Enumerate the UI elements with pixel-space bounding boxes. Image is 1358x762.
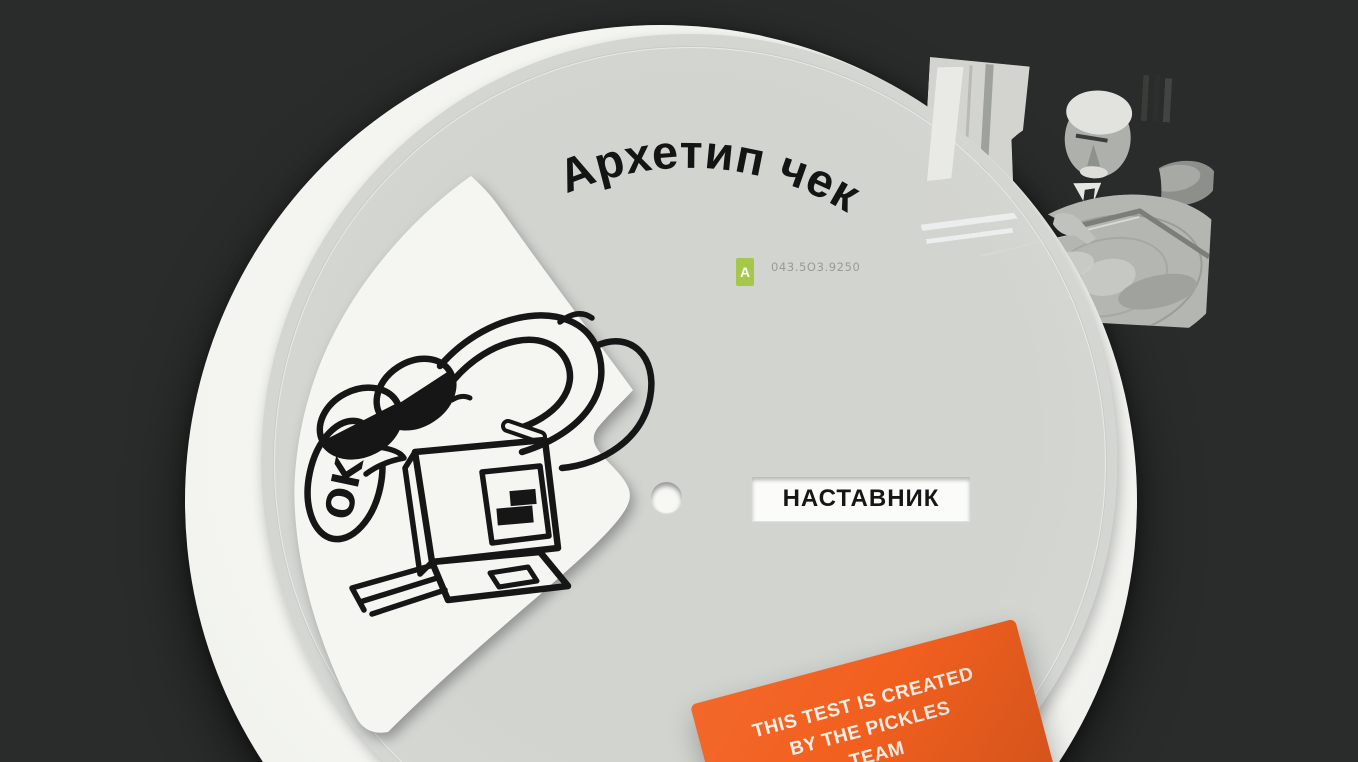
code-letter: A (740, 264, 750, 280)
wheel-title-group: Архетип чек (548, 114, 873, 223)
code-letter-badge: A (736, 258, 754, 286)
wheel-title: Архетип чек (548, 114, 873, 223)
page-background: OK! Архетип чек A 043.5O3.9250 НАСТАВНИК (0, 0, 1358, 762)
archetype-name-label: НАСТАВНИК (783, 485, 940, 513)
code-number: 043.5O3.9250 (771, 260, 860, 274)
archetype-name-window: НАСТАВНИК (752, 477, 970, 521)
wheel-center-hole (651, 482, 682, 513)
jung-mandala-photo (916, 57, 1220, 329)
sticker-line-3: TEAM (711, 699, 1043, 762)
